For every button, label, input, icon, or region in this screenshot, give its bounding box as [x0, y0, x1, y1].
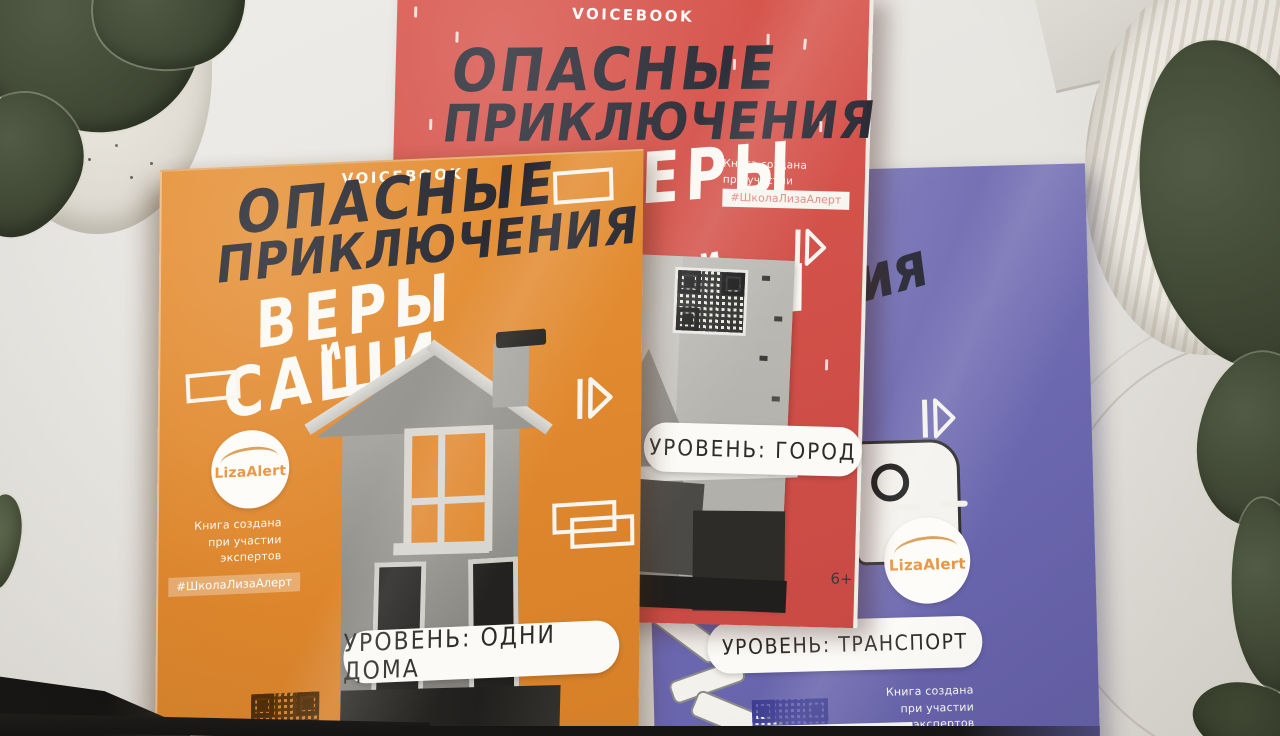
hashtag-chip: #ШколаЛизаАлерт	[722, 189, 849, 210]
road-dash	[941, 501, 968, 508]
lizaalert-wordmark: LizaAlert	[211, 463, 289, 482]
brick-outline-icon	[570, 514, 634, 549]
window-sill-trim	[393, 541, 489, 556]
sill-edge-shadow	[400, 726, 1100, 736]
play-icon	[792, 226, 827, 273]
credits-text: Книга создана при участии экспертов	[166, 515, 281, 570]
age-rating-badge: 6+	[830, 570, 853, 589]
book-cover-odni-doma: VOICEBOOK ОПАСНЫЕ ПРИКЛЮЧЕНИЯ ВЕРЫ и САШ…	[155, 149, 644, 736]
play-icon	[575, 372, 613, 428]
plant-leaf	[0, 491, 27, 591]
road-dash	[893, 504, 920, 511]
level-label: УРОВЕНЬ: ОДНИ ДОМА	[343, 620, 619, 685]
house-window	[403, 425, 493, 555]
bus-wheel-icon	[871, 463, 910, 502]
voicebook-logo: VOICEBOOK	[397, 0, 869, 30]
level-label: УРОВЕНЬ: ГОРОД	[643, 422, 862, 477]
windowsill-photo: ия LizaAlert УРОВЕНЬ: ТРАНСПОРТ Книга со…	[0, 0, 1280, 736]
qr-code	[673, 267, 749, 336]
chimney	[492, 342, 529, 408]
play-icon	[920, 395, 957, 446]
lizaalert-wordmark: LizaAlert	[884, 554, 970, 574]
lizaalert-logo: LizaAlert	[883, 517, 971, 605]
building-windows	[762, 276, 770, 281]
